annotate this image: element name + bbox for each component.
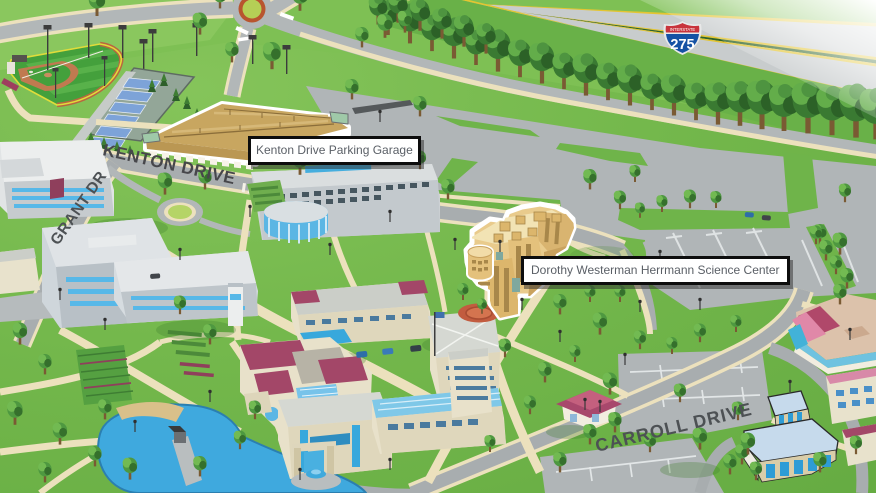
svg-text:275: 275 [670, 37, 694, 53]
svg-text:INTERSTATE: INTERSTATE [670, 27, 696, 32]
